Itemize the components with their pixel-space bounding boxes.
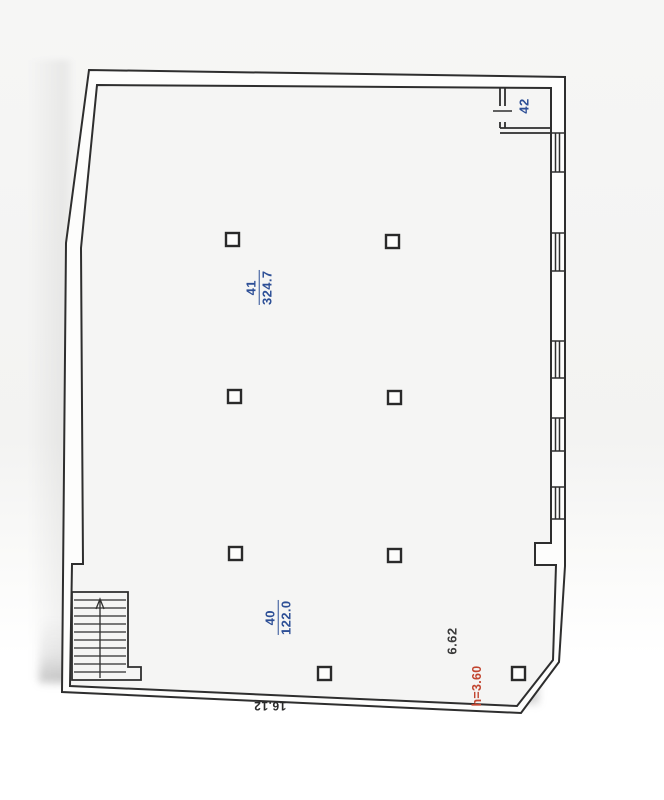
column-4 <box>388 391 401 404</box>
room-41-number: 41 <box>245 280 259 295</box>
room-label-41: 41 324.7 <box>262 320 297 350</box>
room-40-number: 40 <box>264 610 278 625</box>
room-label-40: 40 122.0 <box>281 650 316 680</box>
dimension-ceiling-height: h=3.60 <box>470 665 484 706</box>
floor-plan-page: 41 324.7 40 122.0 42 6.62 h=3.60 16.12 <box>0 0 664 800</box>
column-8 <box>512 667 525 680</box>
inner-wall-path <box>70 85 556 706</box>
room-40-area: 122.0 <box>278 600 294 635</box>
room-41-area: 324.7 <box>259 270 275 305</box>
dimension-bottom-width: 16.12 <box>254 699 287 713</box>
floor-plan-drawing <box>0 0 664 800</box>
dimension-right-depth: 6.62 <box>445 627 460 654</box>
room-label-42: 42 <box>517 98 532 113</box>
column-6 <box>388 549 401 562</box>
column-2 <box>386 235 399 248</box>
column-7 <box>318 667 331 680</box>
column-5 <box>229 547 242 560</box>
column-1 <box>226 233 239 246</box>
column-3 <box>228 390 241 403</box>
